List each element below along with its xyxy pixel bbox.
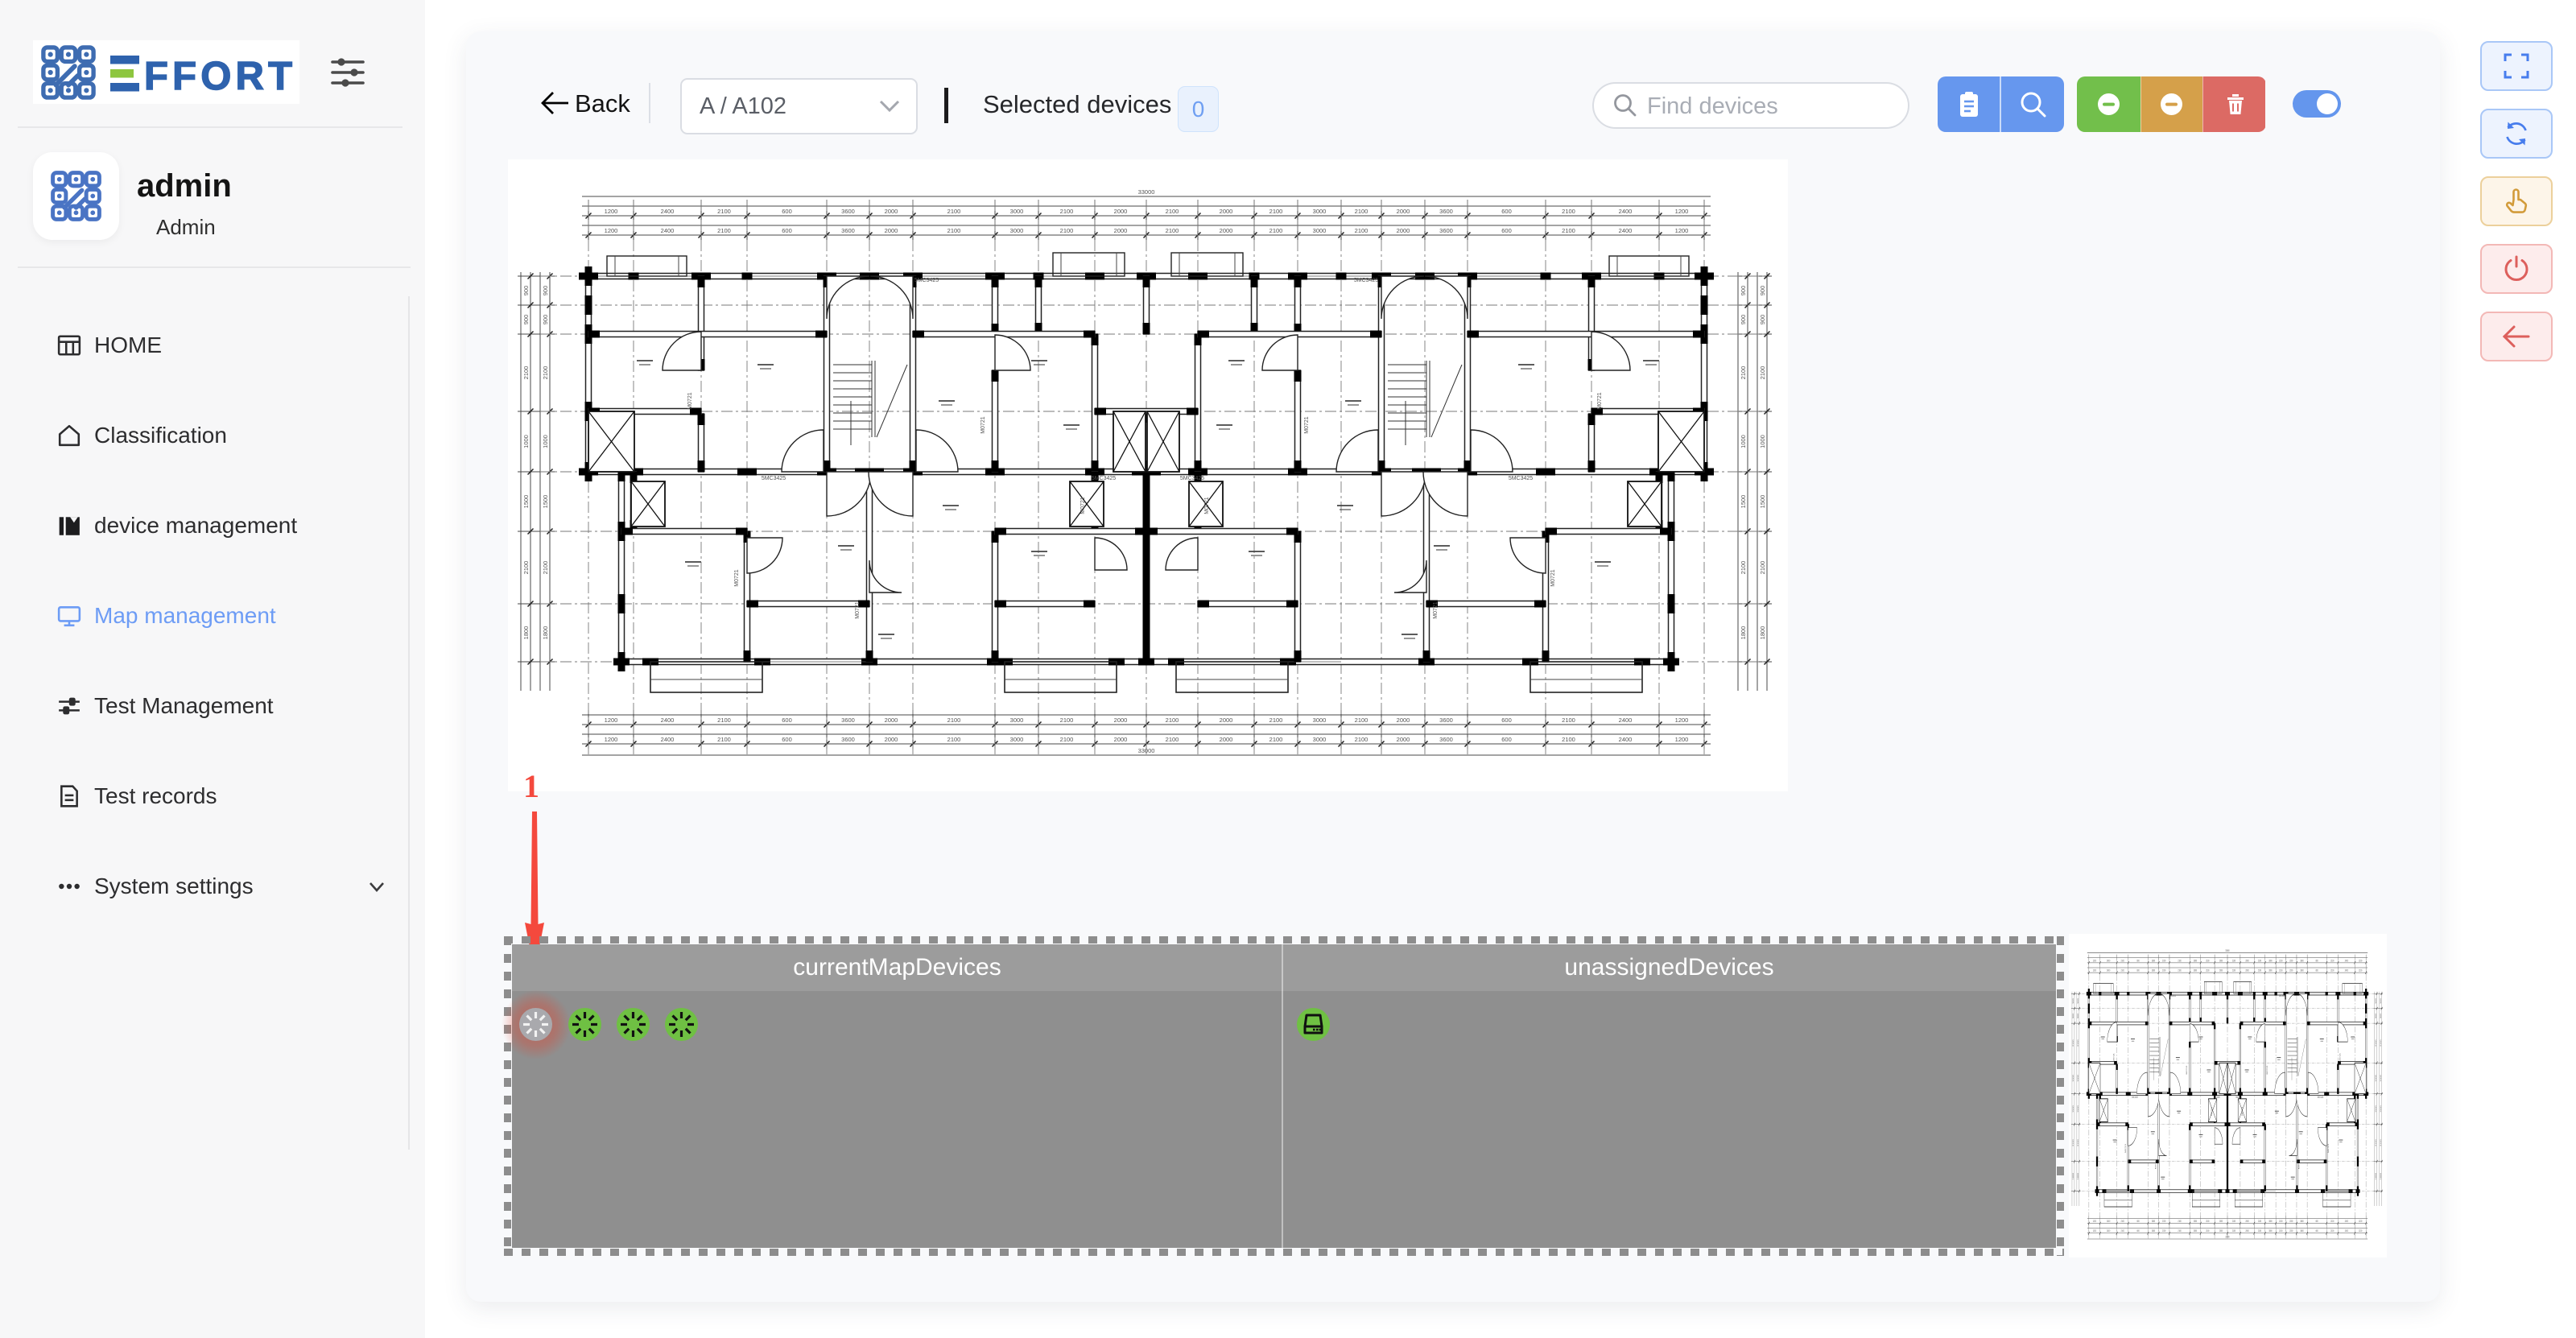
svg-text:3600: 3600 [2300,968,2303,973]
svg-text:2000: 2000 [1220,736,1233,743]
svg-text:900: 900 [1759,286,1766,296]
svg-text:2100: 2100 [717,736,731,743]
svg-text:2100: 2100 [947,227,961,234]
svg-text:2100: 2100 [2330,968,2334,973]
svg-text:3000: 3000 [1010,208,1024,215]
svg-text:2000: 2000 [2162,1229,2165,1233]
svg-text:2100: 2100 [1355,208,1368,215]
svg-text:2000: 2000 [1114,208,1128,215]
svg-text:3000: 3000 [1313,716,1327,724]
svg-text:2100: 2100 [1562,716,1575,724]
svg-text:900: 900 [542,315,549,325]
svg-text:2400: 2400 [1619,227,1633,234]
svg-text:3600: 3600 [841,736,855,743]
svg-text:3000: 3000 [2194,1229,2197,1233]
svg-text:1500: 1500 [542,495,549,509]
svg-text:2100: 2100 [2077,1039,2079,1047]
svg-text:2100: 2100 [1759,366,1766,380]
svg-text:1800: 1800 [522,626,530,640]
svg-text:1200: 1200 [2359,958,2362,962]
svg-text:2100: 2100 [2279,1229,2282,1233]
svg-text:600: 600 [2316,1219,2318,1223]
svg-text:5MC3425: 5MC3425 [1509,476,1533,481]
svg-text:2400: 2400 [2345,1219,2348,1223]
svg-text:1200: 1200 [2093,958,2096,962]
svg-text:M0721: M0721 [2241,1106,2243,1115]
svg-text:2400: 2400 [1619,208,1633,215]
svg-text:5MC3425: 5MC3425 [914,278,939,283]
svg-text:900: 900 [2072,998,2074,1004]
svg-text:3000: 3000 [1313,736,1327,743]
svg-text:2000: 2000 [1397,736,1410,743]
svg-text:2000: 2000 [885,736,898,743]
svg-text:2100: 2100 [1060,736,1074,743]
svg-text:1800: 1800 [2375,1172,2376,1179]
svg-text:2000: 2000 [1114,227,1128,234]
svg-text:3000: 3000 [2268,1229,2272,1233]
svg-text:2000: 2000 [2219,1229,2223,1233]
svg-text:2100: 2100 [2178,1229,2182,1233]
svg-text:2100: 2100 [947,736,961,743]
svg-text:5MC3425: 5MC3425 [762,476,786,481]
svg-text:M0721: M0721 [855,601,861,619]
svg-text:1500: 1500 [1759,495,1766,509]
svg-text:600: 600 [2316,958,2318,962]
svg-text:2100: 2100 [1060,716,1074,724]
svg-text:3600: 3600 [2152,1229,2155,1233]
svg-text:3000: 3000 [2194,958,2197,962]
svg-text:2100: 2100 [522,561,530,575]
svg-text:2400: 2400 [2107,968,2110,973]
svg-text:2000: 2000 [2219,1219,2223,1223]
svg-text:2100: 2100 [522,366,530,380]
svg-text:M0721: M0721 [1550,569,1556,587]
svg-text:2100: 2100 [2178,968,2182,973]
svg-text:1200: 1200 [2093,1229,2096,1233]
svg-text:5MC3425: 5MC3425 [2214,1095,2220,1099]
svg-text:2000: 2000 [1114,716,1128,724]
svg-text:M0721: M0721 [2298,1160,2300,1169]
svg-text:2100: 2100 [2178,1219,2182,1223]
svg-text:3600: 3600 [2152,1219,2155,1223]
svg-text:2100: 2100 [2232,958,2235,962]
svg-text:2400: 2400 [661,208,675,215]
svg-text:2000: 2000 [2289,1229,2293,1233]
svg-text:900: 900 [1759,315,1766,325]
svg-text:900: 900 [2375,1013,2376,1018]
svg-text:5MC3425: 5MC3425 [1180,476,1204,481]
svg-text:2000: 2000 [2219,958,2223,962]
svg-text:1000: 1000 [522,435,530,448]
svg-text:M0721: M0721 [2113,1053,2115,1062]
svg-text:1500: 1500 [522,495,530,509]
svg-text:M0721: M0721 [2339,1053,2341,1062]
svg-text:2400: 2400 [1619,736,1633,743]
svg-text:1500: 1500 [2072,1105,2074,1113]
svg-text:33000: 33000 [2225,948,2229,952]
svg-text:3000: 3000 [1010,736,1024,743]
svg-text:2100: 2100 [2121,1219,2124,1223]
svg-text:2100: 2100 [542,366,549,380]
svg-text:2100: 2100 [2206,1219,2209,1223]
svg-text:33000: 33000 [1138,188,1155,196]
svg-text:3600: 3600 [1439,208,1453,215]
svg-text:2100: 2100 [2077,1139,2079,1146]
svg-text:2100: 2100 [2258,968,2261,973]
svg-text:2100: 2100 [1060,227,1074,234]
svg-text:2100: 2100 [2258,1219,2261,1223]
svg-text:2000: 2000 [1220,716,1233,724]
svg-text:1800: 1800 [1740,626,1747,640]
svg-text:3600: 3600 [1439,736,1453,743]
svg-text:2100: 2100 [2375,1039,2376,1047]
svg-text:1800: 1800 [2077,1172,2079,1179]
svg-text:2100: 2100 [1355,227,1368,234]
svg-text:5MC3425: 5MC3425 [2169,993,2176,997]
svg-text:900: 900 [1740,286,1747,296]
svg-text:2100: 2100 [2330,1219,2334,1223]
svg-text:2100: 2100 [2279,958,2282,962]
svg-text:2100: 2100 [2375,1139,2376,1146]
svg-text:3600: 3600 [2152,968,2155,973]
svg-text:2100: 2100 [2232,1219,2235,1223]
svg-text:600: 600 [2137,958,2140,962]
svg-text:600: 600 [782,208,792,215]
svg-text:M0721: M0721 [2124,1143,2126,1152]
svg-text:3000: 3000 [1010,716,1024,724]
svg-text:2000: 2000 [1397,208,1410,215]
svg-text:2400: 2400 [2107,1229,2110,1233]
svg-text:2100: 2100 [2258,1229,2261,1233]
svg-text:1200: 1200 [1675,208,1689,215]
svg-text:2100: 2100 [2206,1229,2209,1233]
svg-text:2400: 2400 [2345,968,2348,973]
svg-text:3000: 3000 [1313,227,1327,234]
svg-text:2100: 2100 [1355,736,1368,743]
svg-text:600: 600 [1501,227,1512,234]
svg-text:1200: 1200 [1675,716,1689,724]
svg-text:2100: 2100 [2121,958,2124,962]
svg-text:2000: 2000 [2246,968,2249,973]
svg-text:2100: 2100 [2330,958,2334,962]
svg-text:2100: 2100 [1269,208,1283,215]
svg-text:2100: 2100 [2380,1139,2381,1146]
svg-text:900: 900 [2072,1013,2074,1018]
svg-text:2100: 2100 [2232,1229,2235,1233]
svg-text:2000: 2000 [1220,227,1233,234]
svg-text:M0721: M0721 [2327,1143,2329,1152]
svg-text:1200: 1200 [2093,1219,2096,1223]
svg-text:5MC3425: 5MC3425 [2318,1095,2324,1099]
svg-text:3000: 3000 [1010,227,1024,234]
svg-text:2100: 2100 [1166,208,1179,215]
svg-text:2100: 2100 [1562,227,1575,234]
svg-text:600: 600 [1501,736,1512,743]
svg-text:2000: 2000 [2219,968,2223,973]
svg-text:2100: 2100 [2258,958,2261,962]
svg-text:2000: 2000 [2289,1219,2293,1223]
svg-text:2100: 2100 [2121,1229,2124,1233]
svg-text:M0721: M0721 [1204,497,1210,514]
svg-text:900: 900 [2380,998,2381,1004]
svg-text:2100: 2100 [717,208,731,215]
svg-text:1000: 1000 [2072,1075,2074,1082]
svg-text:1200: 1200 [2359,1229,2362,1233]
svg-text:600: 600 [782,736,792,743]
svg-text:1200: 1200 [2359,1219,2362,1223]
svg-text:900: 900 [522,286,530,296]
svg-text:M0721: M0721 [1597,392,1603,410]
svg-text:2100: 2100 [1562,736,1575,743]
svg-text:2100: 2100 [1740,561,1747,575]
svg-text:2100: 2100 [2072,1139,2074,1146]
svg-text:M0721: M0721 [2211,1106,2212,1115]
svg-text:1500: 1500 [1740,495,1747,509]
svg-text:1000: 1000 [1759,435,1766,448]
svg-text:2100: 2100 [1759,561,1766,575]
svg-text:1200: 1200 [1675,736,1689,743]
svg-text:1200: 1200 [1675,227,1689,234]
svg-text:3000: 3000 [2194,968,2197,973]
svg-text:600: 600 [2316,1229,2318,1233]
svg-text:600: 600 [1501,716,1512,724]
svg-text:2100: 2100 [2279,968,2282,973]
svg-text:1000: 1000 [1740,435,1747,448]
svg-text:900: 900 [2375,998,2376,1004]
svg-text:2000: 2000 [2289,968,2293,973]
svg-text:3600: 3600 [2300,958,2303,962]
svg-text:5MC3425: 5MC3425 [1354,278,1378,283]
svg-text:2100: 2100 [2072,1039,2074,1047]
svg-text:900: 900 [2077,1013,2079,1018]
svg-text:1500: 1500 [2380,1105,2381,1113]
svg-text:2100: 2100 [542,561,549,575]
svg-text:1000: 1000 [2077,1075,2079,1082]
svg-text:2100: 2100 [1269,227,1283,234]
svg-text:2100: 2100 [2121,968,2124,973]
svg-text:M0721: M0721 [2186,1065,2187,1074]
svg-text:3600: 3600 [1439,227,1453,234]
svg-text:3600: 3600 [841,227,855,234]
svg-text:3000: 3000 [2268,1219,2272,1223]
svg-text:2400: 2400 [2107,1219,2110,1223]
svg-text:2000: 2000 [1220,208,1233,215]
svg-text:3000: 3000 [2268,968,2272,973]
svg-text:2400: 2400 [661,716,675,724]
svg-text:2100: 2100 [2232,968,2235,973]
svg-text:M0721: M0721 [687,392,693,410]
svg-text:2400: 2400 [2345,1229,2348,1233]
svg-text:600: 600 [2137,1229,2140,1233]
svg-text:2100: 2100 [1166,736,1179,743]
svg-text:600: 600 [2137,1219,2140,1223]
svg-text:1200: 1200 [605,716,618,724]
svg-text:2100: 2100 [2178,958,2182,962]
svg-text:2000: 2000 [1397,716,1410,724]
svg-text:3600: 3600 [2300,1219,2303,1223]
svg-text:2100: 2100 [2330,1229,2334,1233]
svg-text:3600: 3600 [841,716,855,724]
svg-text:900: 900 [2380,1013,2381,1018]
svg-text:2100: 2100 [1166,227,1179,234]
svg-text:2100: 2100 [1166,716,1179,724]
svg-text:1800: 1800 [2072,1172,2074,1179]
svg-text:2400: 2400 [661,736,675,743]
svg-text:M0721: M0721 [2266,1065,2268,1074]
svg-text:2100: 2100 [717,716,731,724]
svg-text:1800: 1800 [1759,626,1766,640]
svg-text:M0721: M0721 [1080,497,1086,514]
svg-text:2400: 2400 [661,227,675,234]
svg-text:2000: 2000 [2289,958,2293,962]
svg-text:2100: 2100 [947,208,961,215]
svg-text:1500: 1500 [2077,1105,2079,1113]
svg-text:M0721: M0721 [980,416,986,434]
svg-text:5MC3425: 5MC3425 [1092,476,1116,481]
svg-text:5MC3425: 5MC3425 [2235,1095,2242,1099]
svg-text:600: 600 [782,227,792,234]
svg-text:2000: 2000 [2246,958,2249,962]
svg-text:2100: 2100 [2206,968,2209,973]
svg-text:600: 600 [2316,968,2318,973]
svg-text:1800: 1800 [2380,1172,2381,1179]
svg-text:2100: 2100 [1060,208,1074,215]
svg-text:1200: 1200 [2093,968,2096,973]
svg-text:2000: 2000 [2162,968,2165,973]
svg-text:3000: 3000 [2194,1219,2197,1223]
svg-text:5MC3425: 5MC3425 [2279,993,2285,997]
svg-text:1500: 1500 [2375,1105,2376,1113]
svg-text:5MC3425: 5MC3425 [2132,1095,2138,1099]
svg-text:3600: 3600 [1439,716,1453,724]
svg-text:2100: 2100 [1740,366,1747,380]
svg-text:3600: 3600 [841,208,855,215]
svg-text:2000: 2000 [1114,736,1128,743]
svg-text:2400: 2400 [2345,958,2348,962]
svg-text:M0721: M0721 [734,569,740,587]
svg-text:1200: 1200 [605,736,618,743]
svg-text:900: 900 [522,315,530,325]
svg-text:1200: 1200 [605,227,618,234]
svg-text:2100: 2100 [1269,736,1283,743]
svg-text:2000: 2000 [885,716,898,724]
svg-text:2100: 2100 [2206,958,2209,962]
svg-text:3600: 3600 [2152,958,2155,962]
svg-text:900: 900 [542,286,549,296]
svg-text:M0721: M0721 [2154,1160,2156,1169]
svg-text:M0721: M0721 [1433,601,1439,619]
svg-text:FFORT: FFORT [144,55,294,93]
svg-text:2000: 2000 [2162,1219,2165,1223]
svg-text:2100: 2100 [1269,716,1283,724]
svg-text:600: 600 [782,716,792,724]
svg-text:1800: 1800 [542,626,549,640]
svg-text:2000: 2000 [885,227,898,234]
svg-text:2100: 2100 [717,227,731,234]
svg-text:900: 900 [2077,998,2079,1004]
svg-text:1000: 1000 [2380,1075,2381,1082]
svg-text:3000: 3000 [1313,208,1327,215]
svg-text:600: 600 [2137,968,2140,973]
svg-text:1000: 1000 [542,435,549,448]
svg-text:900: 900 [1740,315,1747,325]
svg-text:3600: 3600 [2300,1229,2303,1233]
svg-text:2100: 2100 [1355,716,1368,724]
svg-text:1200: 1200 [2359,968,2362,973]
svg-text:2000: 2000 [885,208,898,215]
svg-text:2100: 2100 [1562,208,1575,215]
svg-text:2100: 2100 [2380,1039,2381,1047]
svg-text:2400: 2400 [1619,716,1633,724]
svg-text:M0721: M0721 [1304,416,1310,434]
svg-text:3000: 3000 [2268,958,2272,962]
svg-text:2000: 2000 [1397,227,1410,234]
svg-text:600: 600 [1501,208,1512,215]
svg-text:1200: 1200 [605,208,618,215]
svg-text:2000: 2000 [2246,1229,2249,1233]
svg-text:2100: 2100 [2279,1219,2282,1223]
svg-text:2400: 2400 [2107,958,2110,962]
svg-text:2000: 2000 [2246,1219,2249,1223]
svg-text:2100: 2100 [947,716,961,724]
svg-text:1000: 1000 [2375,1075,2376,1082]
svg-text:2000: 2000 [2162,958,2165,962]
